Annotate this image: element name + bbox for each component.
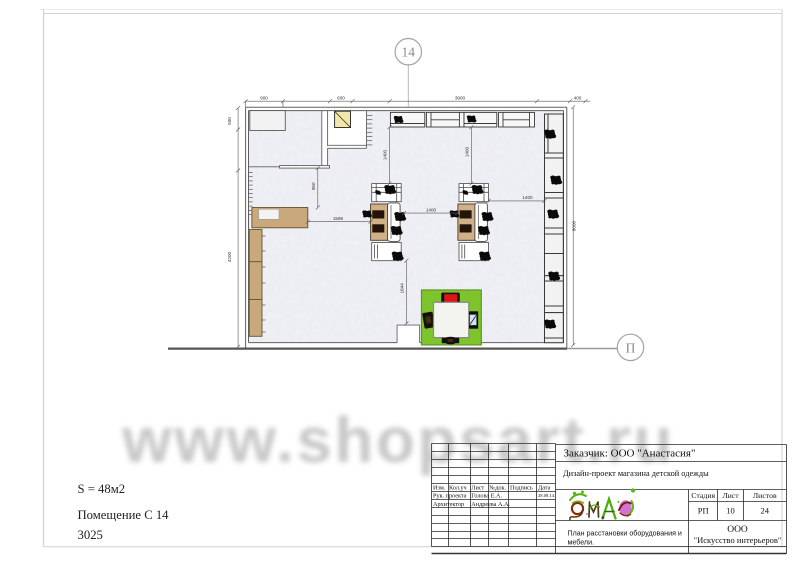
svg-text:1400: 1400: [522, 195, 533, 200]
svg-text:мебели.: мебели.: [568, 538, 595, 546]
svg-text:Изм.: Изм.: [433, 485, 446, 492]
svg-text:План расстановки оборудования: План расстановки оборудования и: [568, 529, 682, 537]
svg-text:24: 24: [761, 506, 770, 516]
svg-text:1400: 1400: [426, 207, 437, 212]
svg-text:Лист: Лист: [471, 485, 484, 492]
svg-text:8000: 8000: [572, 220, 577, 231]
svg-text:S = 48м2: S = 48м2: [78, 482, 126, 496]
svg-text:28.08.14.: 28.08.14.: [538, 493, 555, 498]
svg-text:Листов: Листов: [753, 491, 777, 500]
svg-text:10: 10: [726, 506, 735, 516]
svg-text:Голова Е.А.: Голова Е.А.: [471, 493, 502, 500]
svg-text:Помещение С 14: Помещение С 14: [78, 508, 170, 522]
svg-text:ООО: ООО: [727, 525, 748, 535]
svg-text:Лист: Лист: [722, 491, 739, 500]
svg-text:1596: 1596: [333, 216, 344, 221]
svg-text:1644: 1644: [400, 283, 405, 294]
svg-text:500: 500: [227, 117, 232, 125]
svg-text:400: 400: [574, 96, 582, 101]
svg-text:Дизайн-проект магазина детской: Дизайн-проект магазина детской одежды: [563, 469, 709, 478]
svg-text:900: 900: [260, 96, 268, 101]
svg-text:950: 950: [311, 182, 316, 190]
svg-text:4200: 4200: [227, 251, 232, 262]
svg-text:1400: 1400: [383, 149, 388, 160]
svg-text:1400: 1400: [465, 146, 470, 157]
svg-text:Стадия: Стадия: [691, 491, 715, 500]
svg-text:Кол.уч: Кол.уч: [449, 485, 467, 492]
svg-text:600: 600: [337, 96, 345, 101]
svg-text:"Искусство интерьеров": "Искусство интерьеров": [694, 535, 782, 545]
svg-text:3900: 3900: [455, 96, 466, 101]
svg-text:РП: РП: [698, 506, 709, 516]
svg-text:Заказчик: ООО "Анастасия": Заказчик: ООО "Анастасия": [564, 448, 696, 460]
svg-text:Подпись: Подпись: [510, 485, 533, 492]
svg-text:Рук. проекта: Рук. проекта: [433, 493, 467, 500]
svg-text:3025: 3025: [78, 528, 103, 542]
svg-text:Архитектор: Архитектор: [433, 501, 464, 508]
svg-text:Дата: Дата: [538, 485, 551, 492]
svg-text:14: 14: [402, 45, 416, 60]
svg-text:№док.: №док.: [489, 485, 506, 492]
svg-text:Андреева А.А.: Андреева А.А.: [471, 501, 510, 508]
svg-text:П: П: [626, 340, 636, 355]
